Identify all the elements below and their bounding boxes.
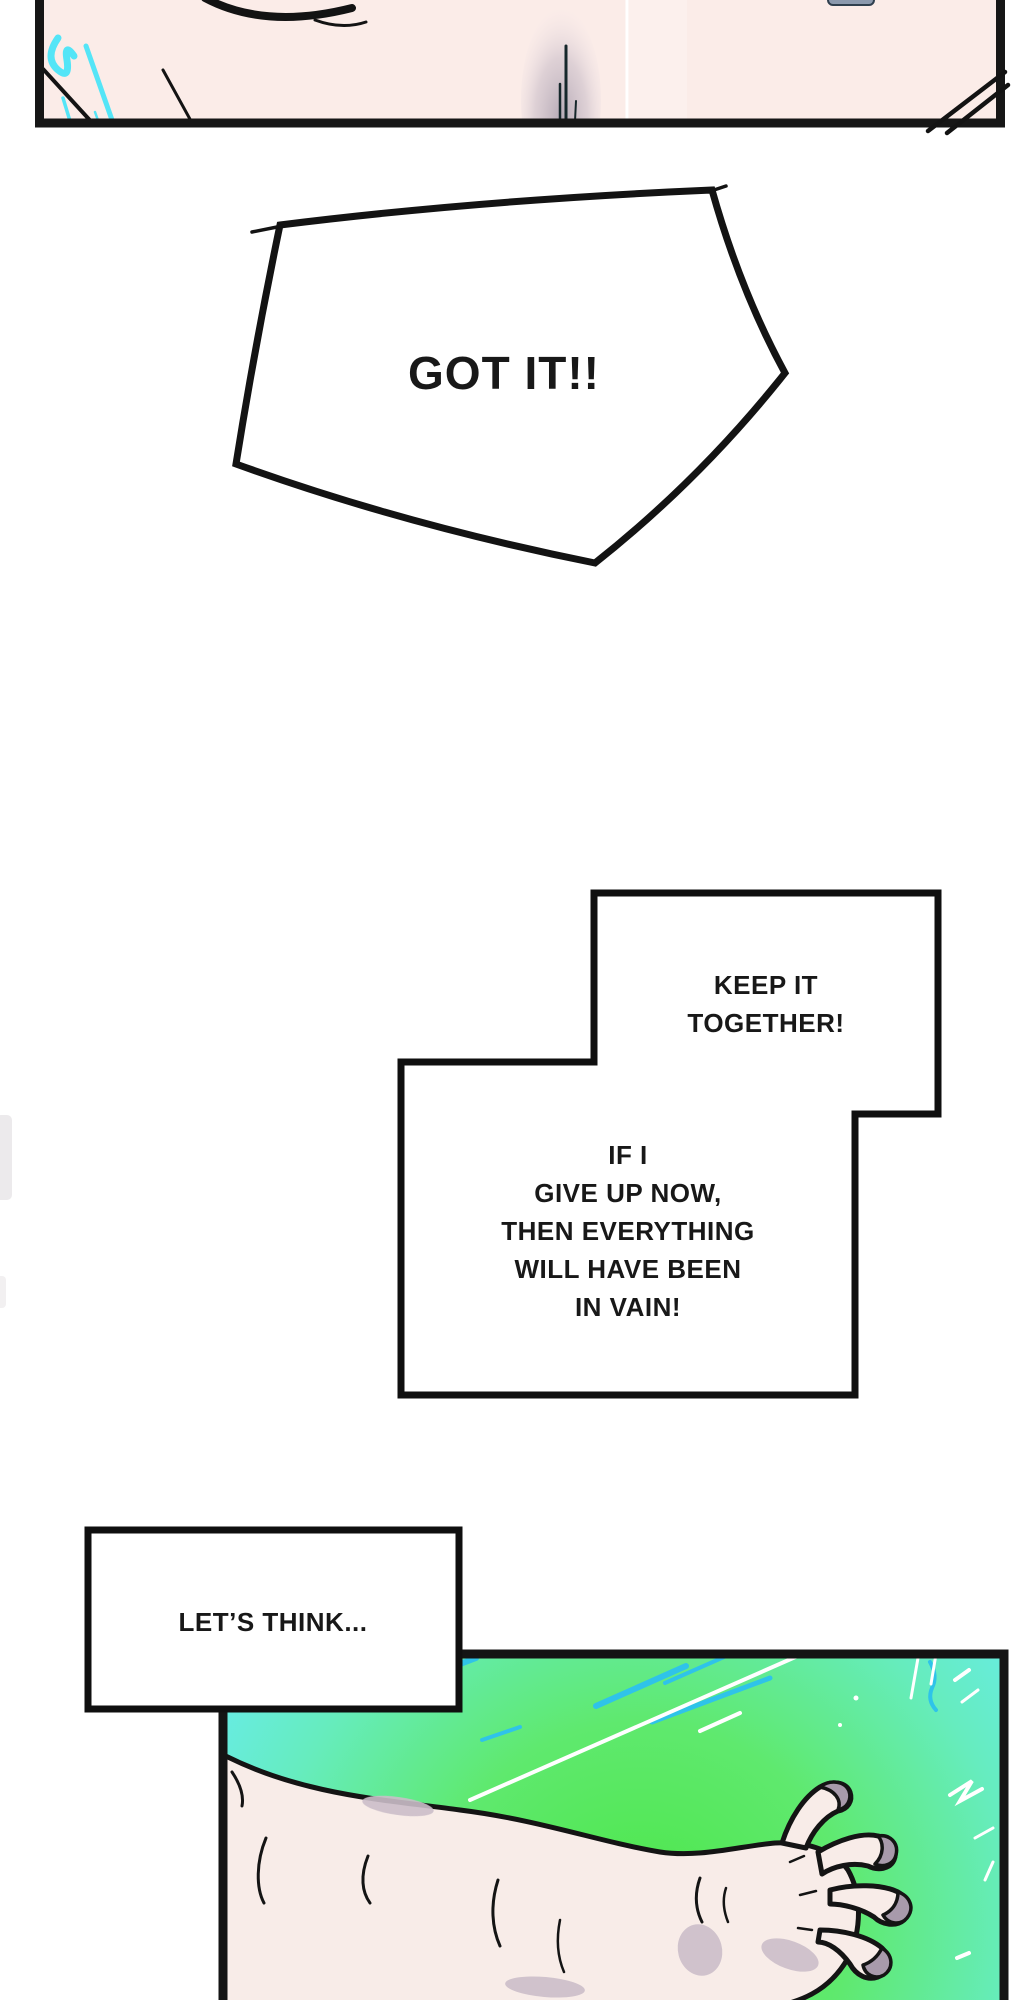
spark-dot — [854, 1696, 859, 1701]
in-vain-line-3: THEN EVERYTHING — [428, 1212, 828, 1250]
in-vain-line-5: IN VAIN! — [428, 1288, 828, 1326]
hair-stroke — [575, 101, 576, 121]
in-vain-line-4: WILL HAVE BEEN — [428, 1250, 828, 1288]
panel-top — [33, 0, 1008, 192]
in-vain-line-1: IF I — [428, 1136, 828, 1174]
keep-it-line-1: KEEP IT — [606, 966, 926, 1004]
in-vain-text: IF I GIVE UP NOW, THEN EVERYTHING WILL H… — [428, 1136, 828, 1326]
in-vain-line-2: GIVE UP NOW, — [428, 1174, 828, 1212]
got-it-text: GOT IT!! — [304, 348, 704, 398]
keep-it-line-2: TOGETHER! — [606, 1004, 926, 1042]
light-band — [629, 0, 687, 119]
cropped-object — [828, 0, 874, 5]
keep-it-text: KEEP IT TOGETHER! — [606, 966, 926, 1042]
lets-think-text: LET’S THINK... — [103, 1603, 443, 1641]
comic-page: GOT IT!! KEEP IT TOGETHER! IF I GIVE UP … — [0, 0, 1024, 2000]
spark-dot — [838, 1723, 842, 1727]
margin-smudge — [0, 1276, 6, 1308]
margin-smudge — [0, 1115, 12, 1200]
